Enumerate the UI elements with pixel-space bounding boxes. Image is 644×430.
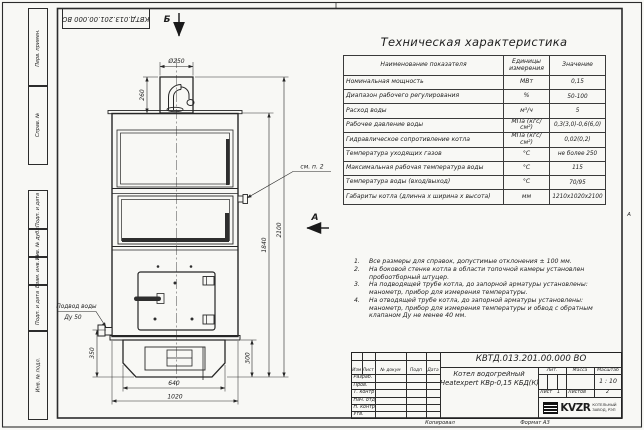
row-razrab: Разраб.	[354, 374, 373, 382]
note-text: Все размеры для справок, допустимые откл…	[369, 258, 607, 266]
stamp-label: Перв. примен.	[35, 29, 41, 67]
row-name: Температура воды (вход/выход)	[344, 176, 504, 190]
row-unit: %	[504, 90, 550, 104]
spec-table: Наименование показателя Единицы измерени…	[343, 55, 606, 205]
stamp-cell: Подп. и дата	[28, 190, 48, 230]
row-nkontr: Н. контр	[354, 404, 375, 411]
col-value-header: Значение	[550, 56, 606, 76]
boiler-outline	[108, 77, 242, 380]
spec-table-title: Техническая характеристика	[343, 35, 605, 49]
product-name-line1: Котел водогрейный	[440, 370, 538, 379]
row-name: Температура уходящих газов	[344, 147, 504, 161]
company-line1: КОТЕЛЬНЫЙ	[592, 403, 616, 407]
note-item: 3.На подводящей трубе котла, до запорной…	[351, 281, 607, 297]
row-name: Номинальная мощность	[344, 76, 504, 90]
col-name-header: Наименование показателя	[344, 56, 504, 76]
dim-chimney-dia: Ø250	[167, 58, 184, 65]
sheet-value: 1	[557, 389, 560, 397]
table-row: Гидравлическое сопротивление котлаМПа (к…	[344, 133, 606, 148]
table-row: Температура воды (вход/выход)°С70/95	[344, 176, 606, 190]
note-text: На боковой стенке котла в области топочн…	[369, 266, 607, 282]
col-podp: Подп	[406, 367, 426, 374]
note-number: 3.	[351, 281, 369, 297]
stamp-cell: Взам. инв. №	[28, 256, 48, 286]
notes-list: 1.Все размеры для справок, допустимые от…	[351, 258, 607, 320]
scale-label: Масштаб	[594, 367, 622, 374]
stamp-cell: Справ. №	[28, 85, 48, 165]
dim-base-h: 300	[245, 352, 252, 364]
row-value: 5	[550, 104, 606, 118]
view-a-label: А	[311, 213, 319, 223]
row-value: 1210х1020х2100	[550, 190, 606, 204]
sheets-label: Листов	[568, 389, 586, 397]
row-name: Габариты котла (длинна х ширина х высота…	[344, 190, 504, 204]
row-name: Диапазон рабочего регулирования	[344, 90, 504, 104]
note-item: 2.На боковой стенке котла в области топо…	[351, 266, 607, 282]
stamp-cell: Инв. № подл.	[28, 330, 48, 420]
dim-chimney-h: 260	[139, 89, 146, 101]
company-logo: KVZR КОТЕЛЬНЫЙ ЗАВОД, РЭП	[539, 398, 621, 417]
lit-label: Лит.	[538, 367, 566, 374]
row-unit: мм	[504, 190, 550, 204]
section-b-label: Б	[164, 15, 171, 25]
stamp-label: Инв. № подл.	[35, 358, 41, 393]
boiler-logo-icon	[543, 402, 558, 414]
table-row: Максимальная рабочая температура воды°С1…	[344, 162, 606, 176]
note-text: На отводящей трубе котла, до запорной ар…	[369, 297, 607, 320]
stamp-label: Взам. инв. №	[35, 254, 41, 288]
doc-number: КВТД.013.201.00.000 ВО	[440, 352, 622, 367]
dimension-lines	[97, 67, 284, 402]
row-value: 0,3(3,0)-0,6(6,0)	[550, 118, 606, 133]
product-name-line2: Heatexpert КВр-0,15 КБД(К)	[440, 379, 538, 388]
logo-text: KVZR	[560, 402, 590, 414]
sheet-label: Лист	[540, 389, 552, 397]
stamp-cell: Перв. примен.	[28, 8, 48, 87]
row-name: Расход воды	[344, 104, 504, 118]
drawing-sheet: Ø250 260 1840 2100 350 300 640 1020 см. …	[0, 0, 644, 430]
row-unit: МПа (кгс/см²)	[504, 118, 550, 133]
col-izm: Изм	[352, 367, 362, 374]
dim-total-h: 2100	[276, 222, 283, 237]
row-unit: м³/ч	[504, 104, 550, 118]
row-value: 50-100	[550, 90, 606, 104]
company-name: КОТЕЛЬНЫЙ ЗАВОД, РЭП	[592, 403, 616, 412]
row-unit: °С	[504, 147, 550, 161]
note-number: 1.	[351, 258, 369, 266]
water-inlet-pipe	[98, 325, 112, 336]
table-row: Температура уходящих газов°Сне более 250	[344, 147, 606, 161]
row-name: Максимальная рабочая температура воды	[344, 162, 504, 176]
row-value: 70/95	[550, 176, 606, 190]
row-name: Рабочее давление воды	[344, 118, 504, 133]
col-docnum: № докум	[375, 367, 406, 374]
frame-zone-letter: А	[626, 212, 631, 218]
dim-inlet-h: 350	[89, 347, 96, 359]
leader-lines	[57, 13, 331, 327]
spec-header-row: Наименование показателя Единицы измерени…	[344, 56, 606, 76]
row-value: 115	[550, 162, 606, 176]
water-inlet-label-2: Ду 50	[63, 315, 81, 321]
row-value: 0,02(0,2)	[550, 133, 606, 148]
row-nachotd: Нач. отд	[354, 397, 375, 405]
probe-nozzle	[238, 195, 248, 204]
row-prov: Пров.	[354, 382, 368, 390]
format-label: Формат А3	[500, 420, 570, 426]
mass-label: Масса	[566, 367, 594, 374]
row-unit: °С	[504, 162, 550, 176]
table-row: Рабочее давление водыМПа (кгс/см²)0,3(3,…	[344, 118, 606, 133]
note-number: 2.	[351, 266, 369, 282]
stamp-label: Подп. и дата	[35, 291, 41, 325]
table-row: Номинальная мощностьМВт0,15	[344, 76, 606, 90]
stamp-label: Справ. №	[35, 113, 41, 137]
stamp-cell: Подп. и дата	[28, 284, 48, 332]
doc-number-top: КВТД.013.201.00.000 ВО	[62, 15, 149, 23]
product-name: Котел водогрейный Heatexpert КВр-0,15 КБ…	[440, 370, 538, 387]
row-unit: °С	[504, 176, 550, 190]
table-row: Расход водым³/ч5	[344, 104, 606, 118]
note-item: 1.Все размеры для справок, допустимые от…	[351, 258, 607, 266]
col-data: Дата	[426, 367, 440, 374]
dim-base-w: 640	[168, 380, 180, 387]
sheets-value: 2	[606, 389, 609, 397]
dim-total-w: 1020	[167, 394, 182, 401]
door-handle	[134, 297, 161, 302]
see-note-label: см. п. 2	[300, 164, 323, 171]
water-inlet-label-1: Подвод воды	[56, 304, 97, 310]
row-tkontr: Т. контр	[354, 389, 375, 397]
col-unit-header: Единицы измерения	[504, 56, 550, 76]
row-unit: МПа (кгс/см²)	[504, 133, 550, 148]
copied-label: Копировал	[405, 420, 475, 426]
row-value: 0,15	[550, 76, 606, 90]
scale-value: 1 : 10	[594, 374, 622, 389]
chimney-elbow	[167, 85, 194, 112]
table-row: Габариты котла (длинна х ширина х высота…	[344, 190, 606, 204]
table-row: Диапазон рабочего регулирования%50-100	[344, 90, 606, 104]
company-line2: ЗАВОД, РЭП	[592, 408, 616, 412]
row-utv: Утв.	[354, 411, 364, 418]
stamp-label: Подп. и дата	[35, 193, 41, 227]
dim-body-h: 1840	[261, 237, 268, 252]
row-unit: МВт	[504, 76, 550, 90]
note-text: На подводящей трубе котла, до запорной а…	[369, 281, 607, 297]
note-item: 4.На отводящей трубе котла, до запорной …	[351, 297, 607, 320]
row-name: Гидравлическое сопротивление котла	[344, 133, 504, 148]
row-value: не более 250	[550, 147, 606, 161]
col-list: Лист	[362, 367, 376, 374]
note-number: 4.	[351, 297, 369, 320]
doc-number-top-box: КВТД.013.201.00.000 ВО	[62, 8, 150, 29]
